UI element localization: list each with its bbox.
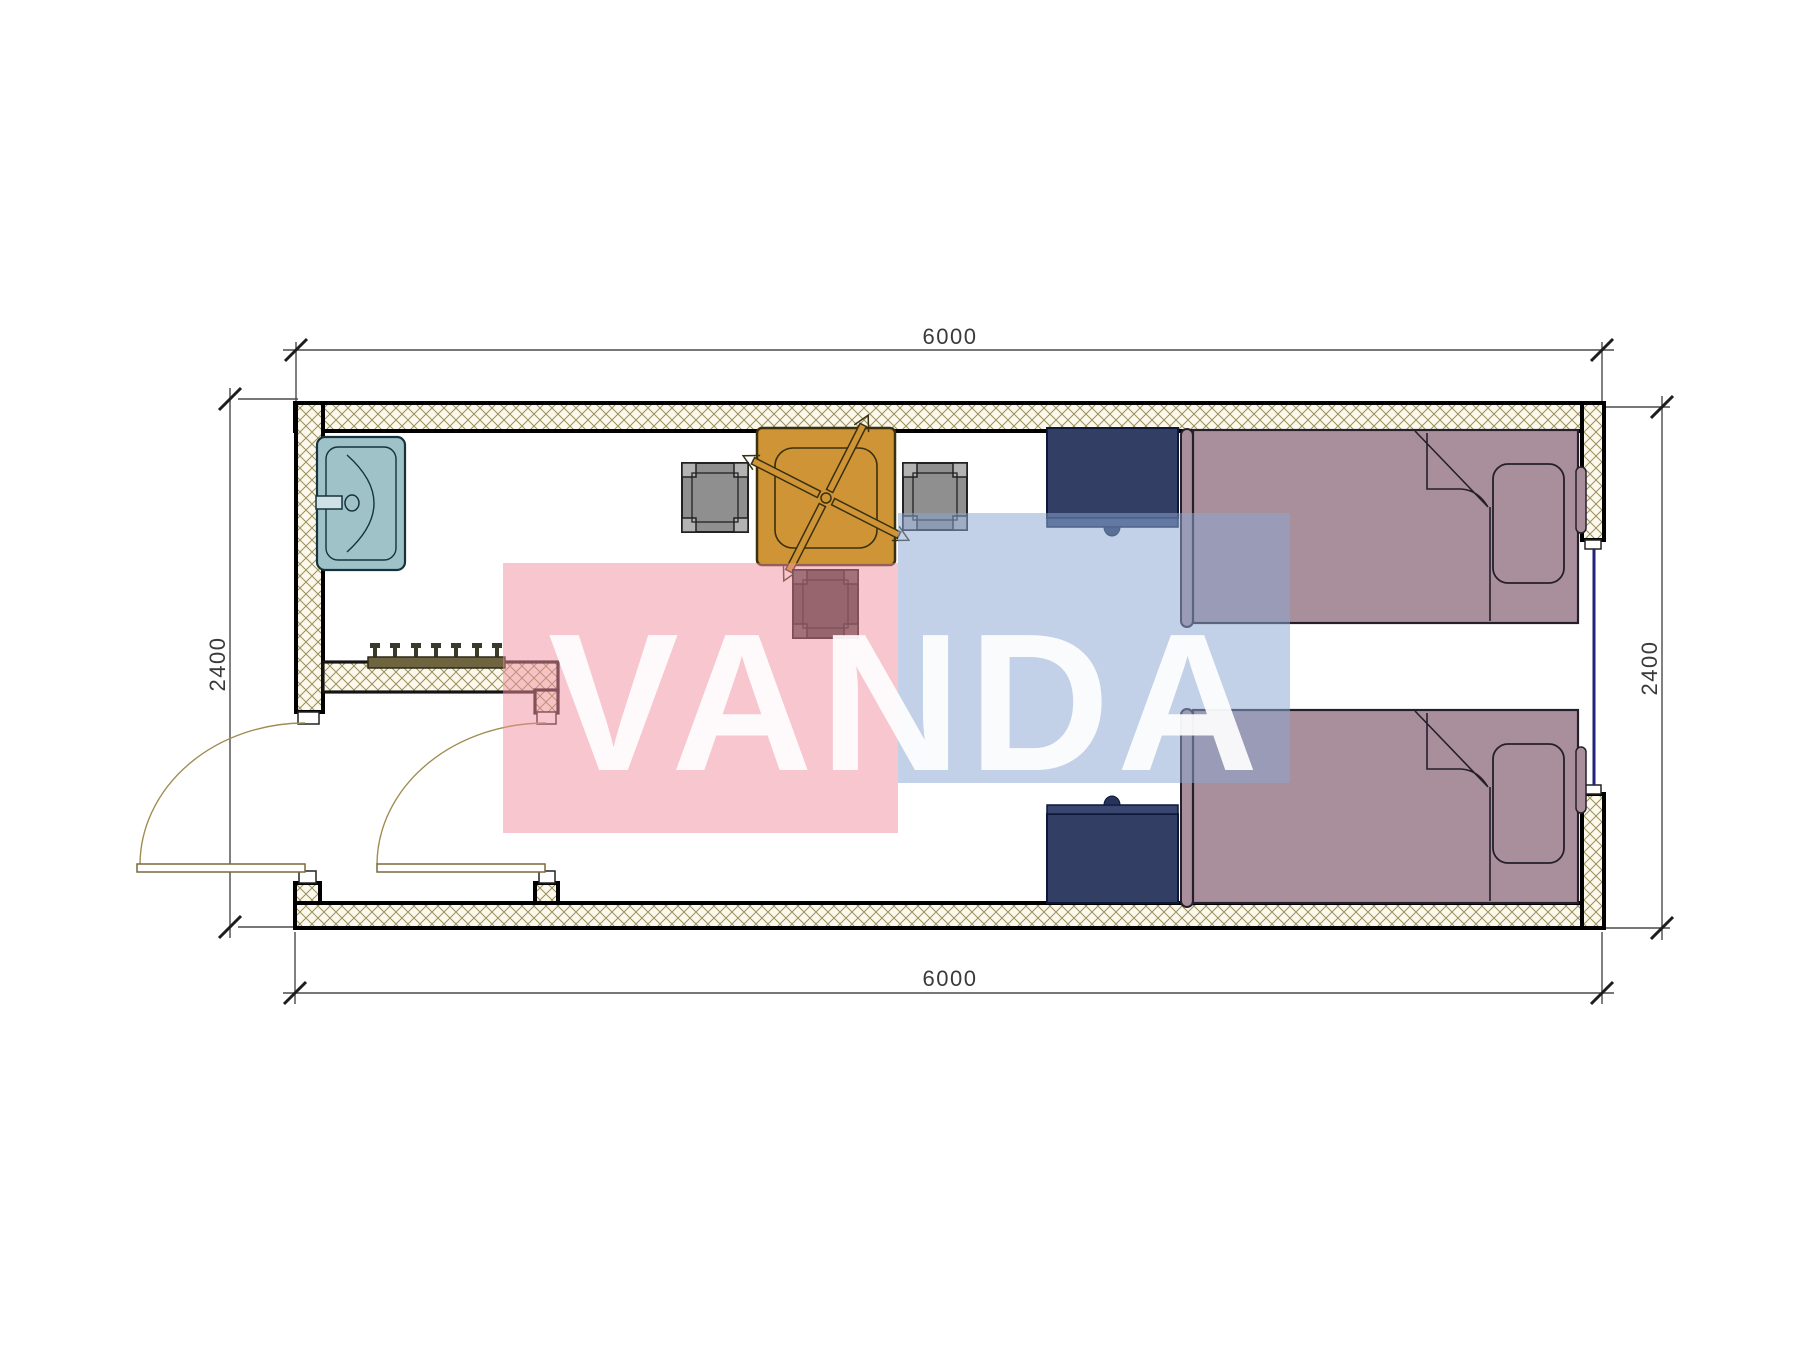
door-jamb bbox=[298, 712, 319, 724]
coat-rack bbox=[368, 643, 505, 668]
window-jamb bbox=[1585, 540, 1601, 549]
door-jamb bbox=[299, 871, 316, 883]
chair-left bbox=[682, 463, 748, 532]
door-leaf-left bbox=[137, 864, 305, 872]
door-leaf-right bbox=[377, 864, 545, 872]
sink-faucet bbox=[316, 496, 342, 509]
door-jamb bbox=[539, 871, 555, 883]
bottom-dimension-label: 6000 bbox=[923, 966, 978, 991]
watermark: VANDA bbox=[503, 513, 1290, 833]
window-jamb bbox=[1585, 785, 1601, 794]
floor-plan-drawing: 6000 6000 2400 2400 bbox=[0, 0, 1800, 1350]
coat-rack-bar bbox=[368, 657, 505, 668]
pillow bbox=[1493, 464, 1564, 583]
left-dimension-lines bbox=[230, 388, 298, 938]
left-dimension-label: 2400 bbox=[205, 637, 230, 692]
right-wall-lower-stub bbox=[1582, 794, 1604, 928]
nightstand-bottom bbox=[1047, 796, 1178, 903]
right-dimension-label: 2400 bbox=[1637, 641, 1662, 696]
bed-footboard-bar bbox=[1576, 467, 1586, 533]
sink bbox=[316, 437, 405, 570]
top-dimension-label: 6000 bbox=[923, 324, 978, 349]
door-swing-arc-left bbox=[140, 723, 305, 864]
entry-doors bbox=[137, 723, 546, 872]
watermark-text: VANDA bbox=[548, 593, 1265, 812]
floor-plan-canvas: 6000 6000 2400 2400 bbox=[0, 0, 1800, 1350]
top-exterior-wall bbox=[295, 403, 1604, 431]
sink-faucet-knob bbox=[345, 495, 359, 511]
bottom-exterior-wall bbox=[295, 903, 1604, 928]
top-dimension-lines bbox=[283, 342, 1614, 401]
